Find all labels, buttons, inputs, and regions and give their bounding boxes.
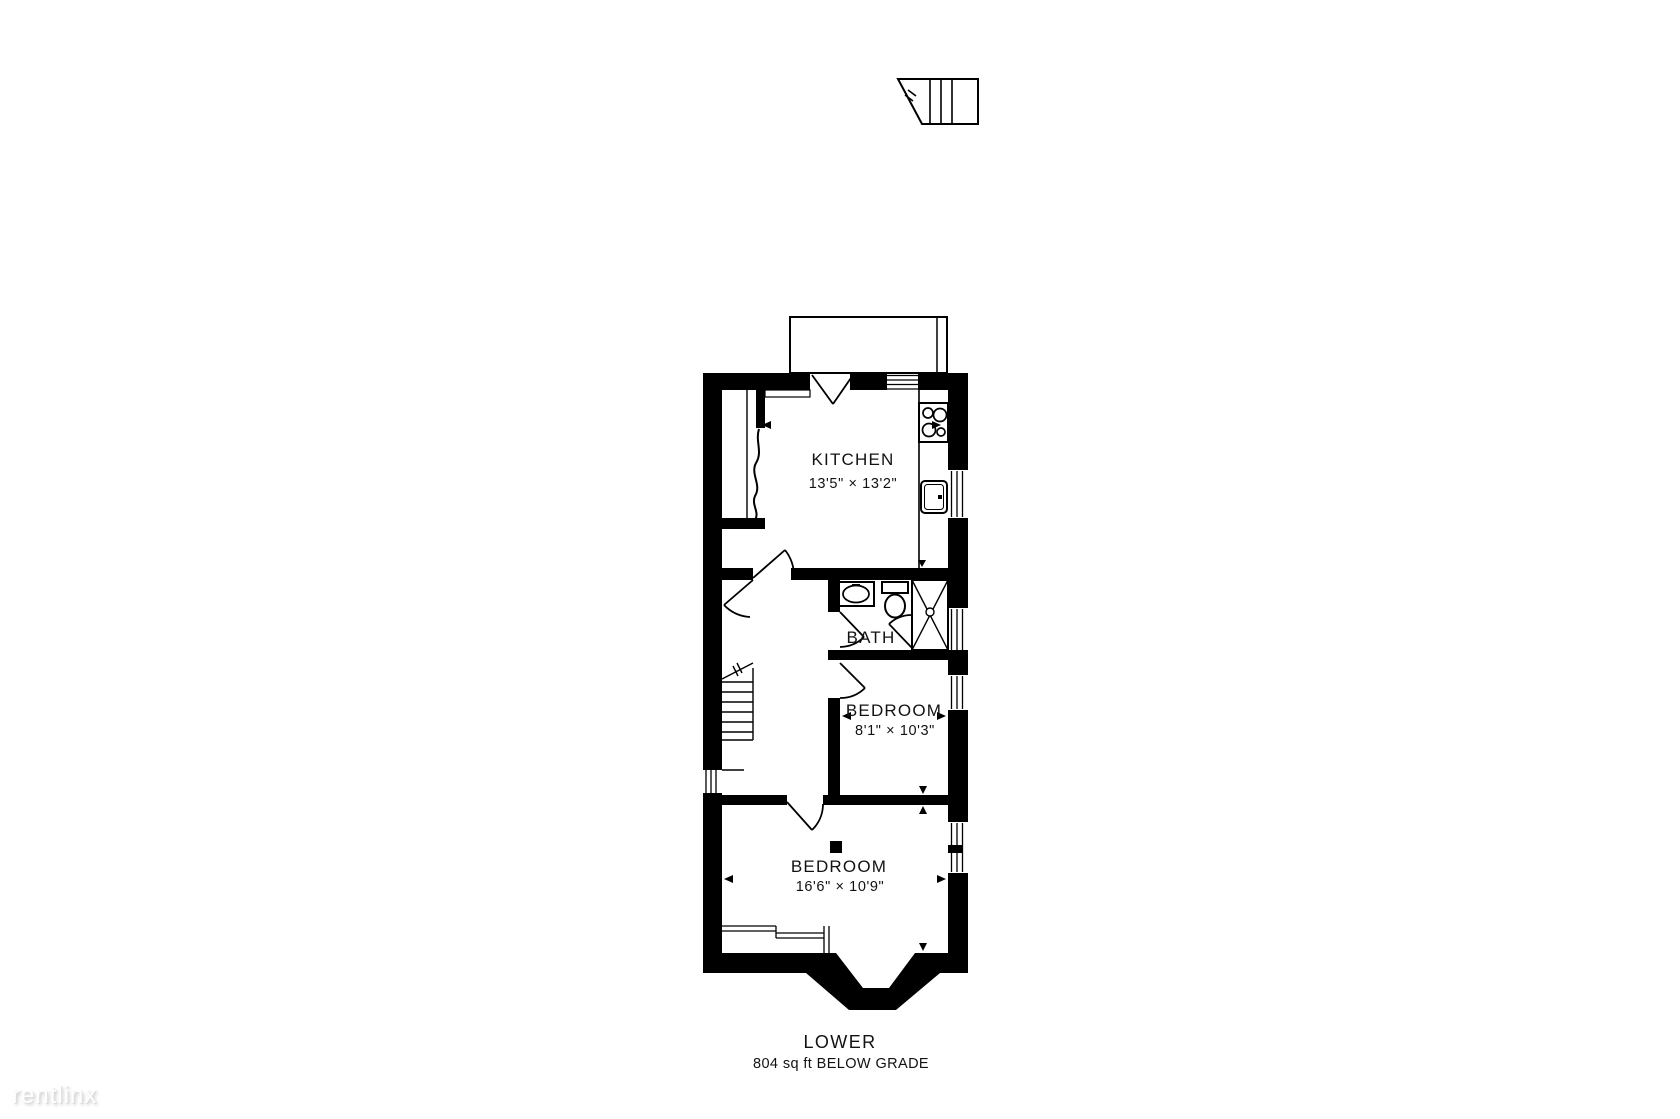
toilet-icon — [882, 582, 908, 618]
window-left-wall — [706, 770, 716, 793]
kitchen-sink-icon — [921, 481, 947, 513]
rentlinx-watermark: rentlinx — [12, 1082, 97, 1110]
bedroom-small-door — [840, 663, 865, 698]
door-swing-icons — [724, 375, 912, 830]
bath-label: BATH — [847, 628, 896, 648]
kitchen-dimensions: 13'5" × 13'2" — [809, 476, 898, 492]
bedroom-large-label: BEDROOM — [791, 857, 887, 877]
window-kitchen — [952, 471, 963, 517]
window-bath — [952, 609, 963, 651]
shower-icon — [912, 580, 948, 650]
hall-door-lower — [724, 580, 753, 617]
floor-area-label: 804 sq ft BELOW GRADE — [753, 1056, 929, 1072]
entry-vestibule-outline — [790, 317, 947, 373]
entry-double-door — [812, 375, 853, 404]
bedroom-large-door — [787, 802, 823, 830]
exterior-stairs-icon — [898, 79, 978, 124]
floor-title: LOWER — [803, 1032, 876, 1053]
bedroom-small-label: BEDROOM — [846, 701, 942, 721]
hall-door-upper — [753, 550, 794, 578]
interior-stairs-icon — [722, 663, 753, 770]
bedroom-small-dimensions: 8'1" × 10'3" — [855, 723, 935, 739]
kitchen-label: KITCHEN — [811, 450, 894, 470]
bath-sink-icon — [838, 582, 874, 606]
floor-plan-page: KITCHEN 13'5" × 13'2" BATH BEDROOM 8'1" … — [0, 0, 1680, 1119]
bedroom-large-dimensions: 16'6" × 10'9" — [796, 879, 885, 895]
window-bedroom-small — [952, 676, 963, 709]
bay-window-wall — [806, 953, 940, 1010]
builtin-window-sill — [722, 926, 829, 953]
floor-plan-canvas — [0, 0, 1680, 1119]
kitchen-fixtures — [919, 390, 948, 568]
window-top — [887, 376, 918, 390]
